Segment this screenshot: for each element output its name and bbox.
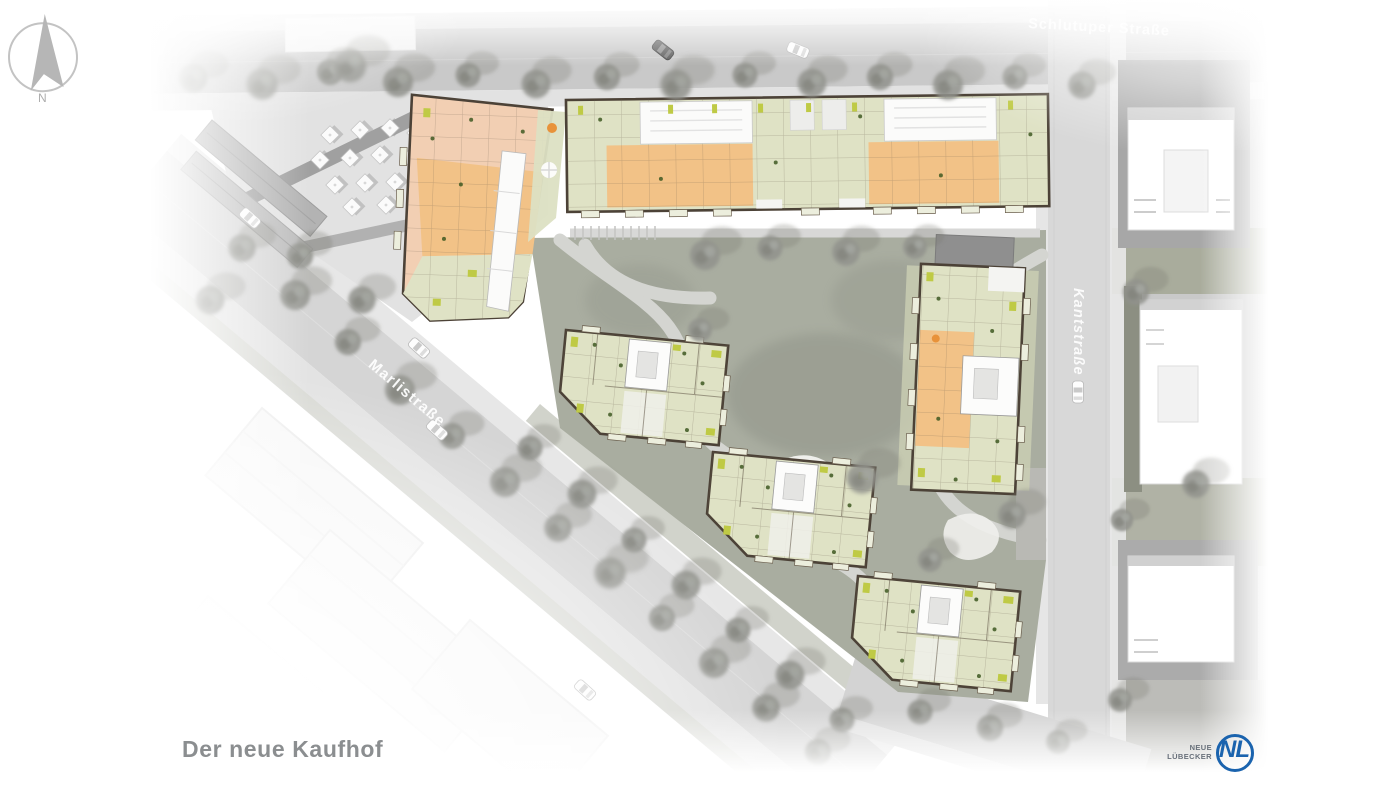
- building-east: [897, 233, 1040, 495]
- brand-line-1: NEUE: [1167, 743, 1212, 752]
- street-label-kantstrasse: Kantstraße: [1070, 288, 1086, 376]
- car-icon: [573, 679, 597, 702]
- site-plan: Schlutuper Straße Marlistraße Kantstraße…: [0, 0, 1400, 788]
- compass-north-label: N: [38, 91, 47, 105]
- site-plan-drawing: Schlutuper Straße Marlistraße Kantstraße: [0, 0, 1400, 788]
- east-building-1: [1128, 108, 1234, 230]
- brand-monogram: NL: [1215, 735, 1253, 767]
- brand-line-2: LÜBECKER: [1167, 752, 1212, 761]
- brand-wordmark: NEUE LÜBECKER: [1167, 743, 1212, 762]
- building-west: [391, 94, 553, 324]
- brand-logo: NEUE LÜBECKER NL: [1134, 732, 1254, 780]
- existing-buildings-east: [1118, 60, 1258, 680]
- car-icon: [1073, 381, 1084, 403]
- east-building-3: [1118, 540, 1258, 680]
- north-arrow-icon: N: [0, 0, 100, 126]
- building-row-north: [566, 94, 1049, 218]
- plan-title: Der neue Kaufhof: [182, 736, 383, 763]
- east-building-2: [1124, 286, 1242, 492]
